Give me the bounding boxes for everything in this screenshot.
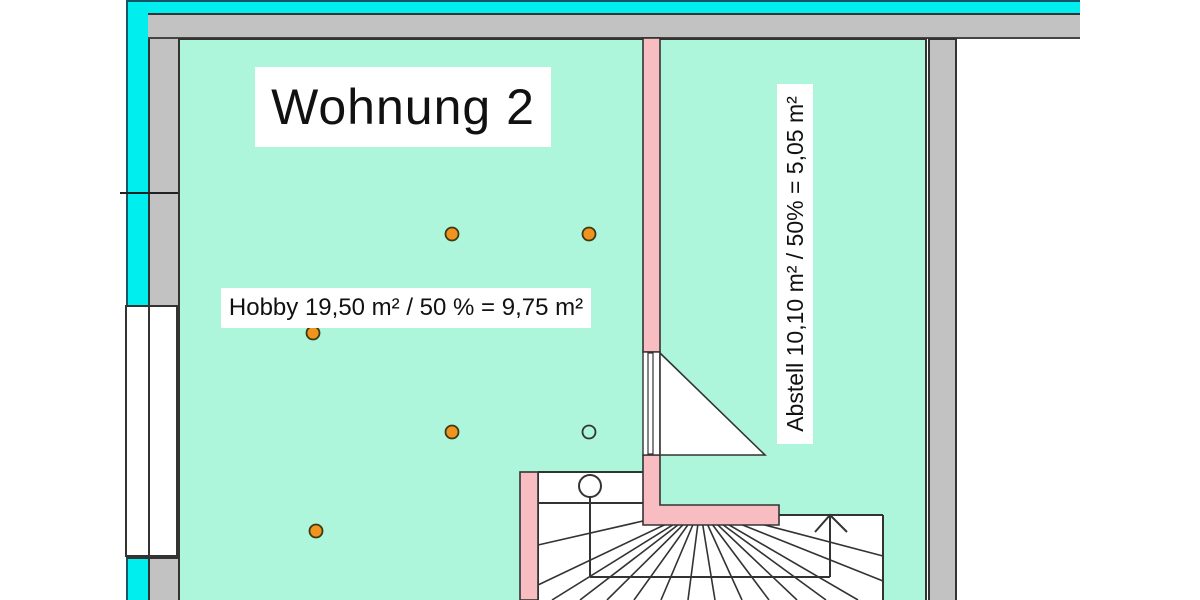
stair-newel-circle xyxy=(579,475,601,497)
lamp-marker-3 xyxy=(307,327,320,340)
abstell-area-label: Abstell 10,10 m² / 50% = 5,05 m² xyxy=(777,84,813,444)
hobby-area-label: Hobby 19,50 m² / 50 % = 9,75 m² xyxy=(221,288,591,328)
lamp-marker-1 xyxy=(446,228,459,241)
apartment-title-text: Wohnung 2 xyxy=(271,78,535,136)
floor-plan-canvas: Wohnung 2 Hobby 19,50 m² / 50 % = 9,75 m… xyxy=(0,0,1200,600)
lamp-marker-2 xyxy=(583,228,596,241)
wall-pink-center xyxy=(643,38,660,352)
apartment-title: Wohnung 2 xyxy=(255,67,551,147)
abstell-area-label-text: Abstell 10,10 m² / 50% = 5,05 m² xyxy=(782,85,809,443)
wall-pink-left xyxy=(520,472,538,600)
lamp-marker-5 xyxy=(310,525,323,538)
door-swing-triangle xyxy=(660,353,765,455)
staircase-drawing xyxy=(0,0,1200,600)
lamp-marker-4 xyxy=(446,426,459,439)
door-leaf xyxy=(648,353,653,454)
wall-pink-l-shape xyxy=(643,455,779,525)
hobby-area-label-text: Hobby 19,50 m² / 50 % = 9,75 m² xyxy=(229,294,583,322)
hollow-marker xyxy=(583,426,596,439)
